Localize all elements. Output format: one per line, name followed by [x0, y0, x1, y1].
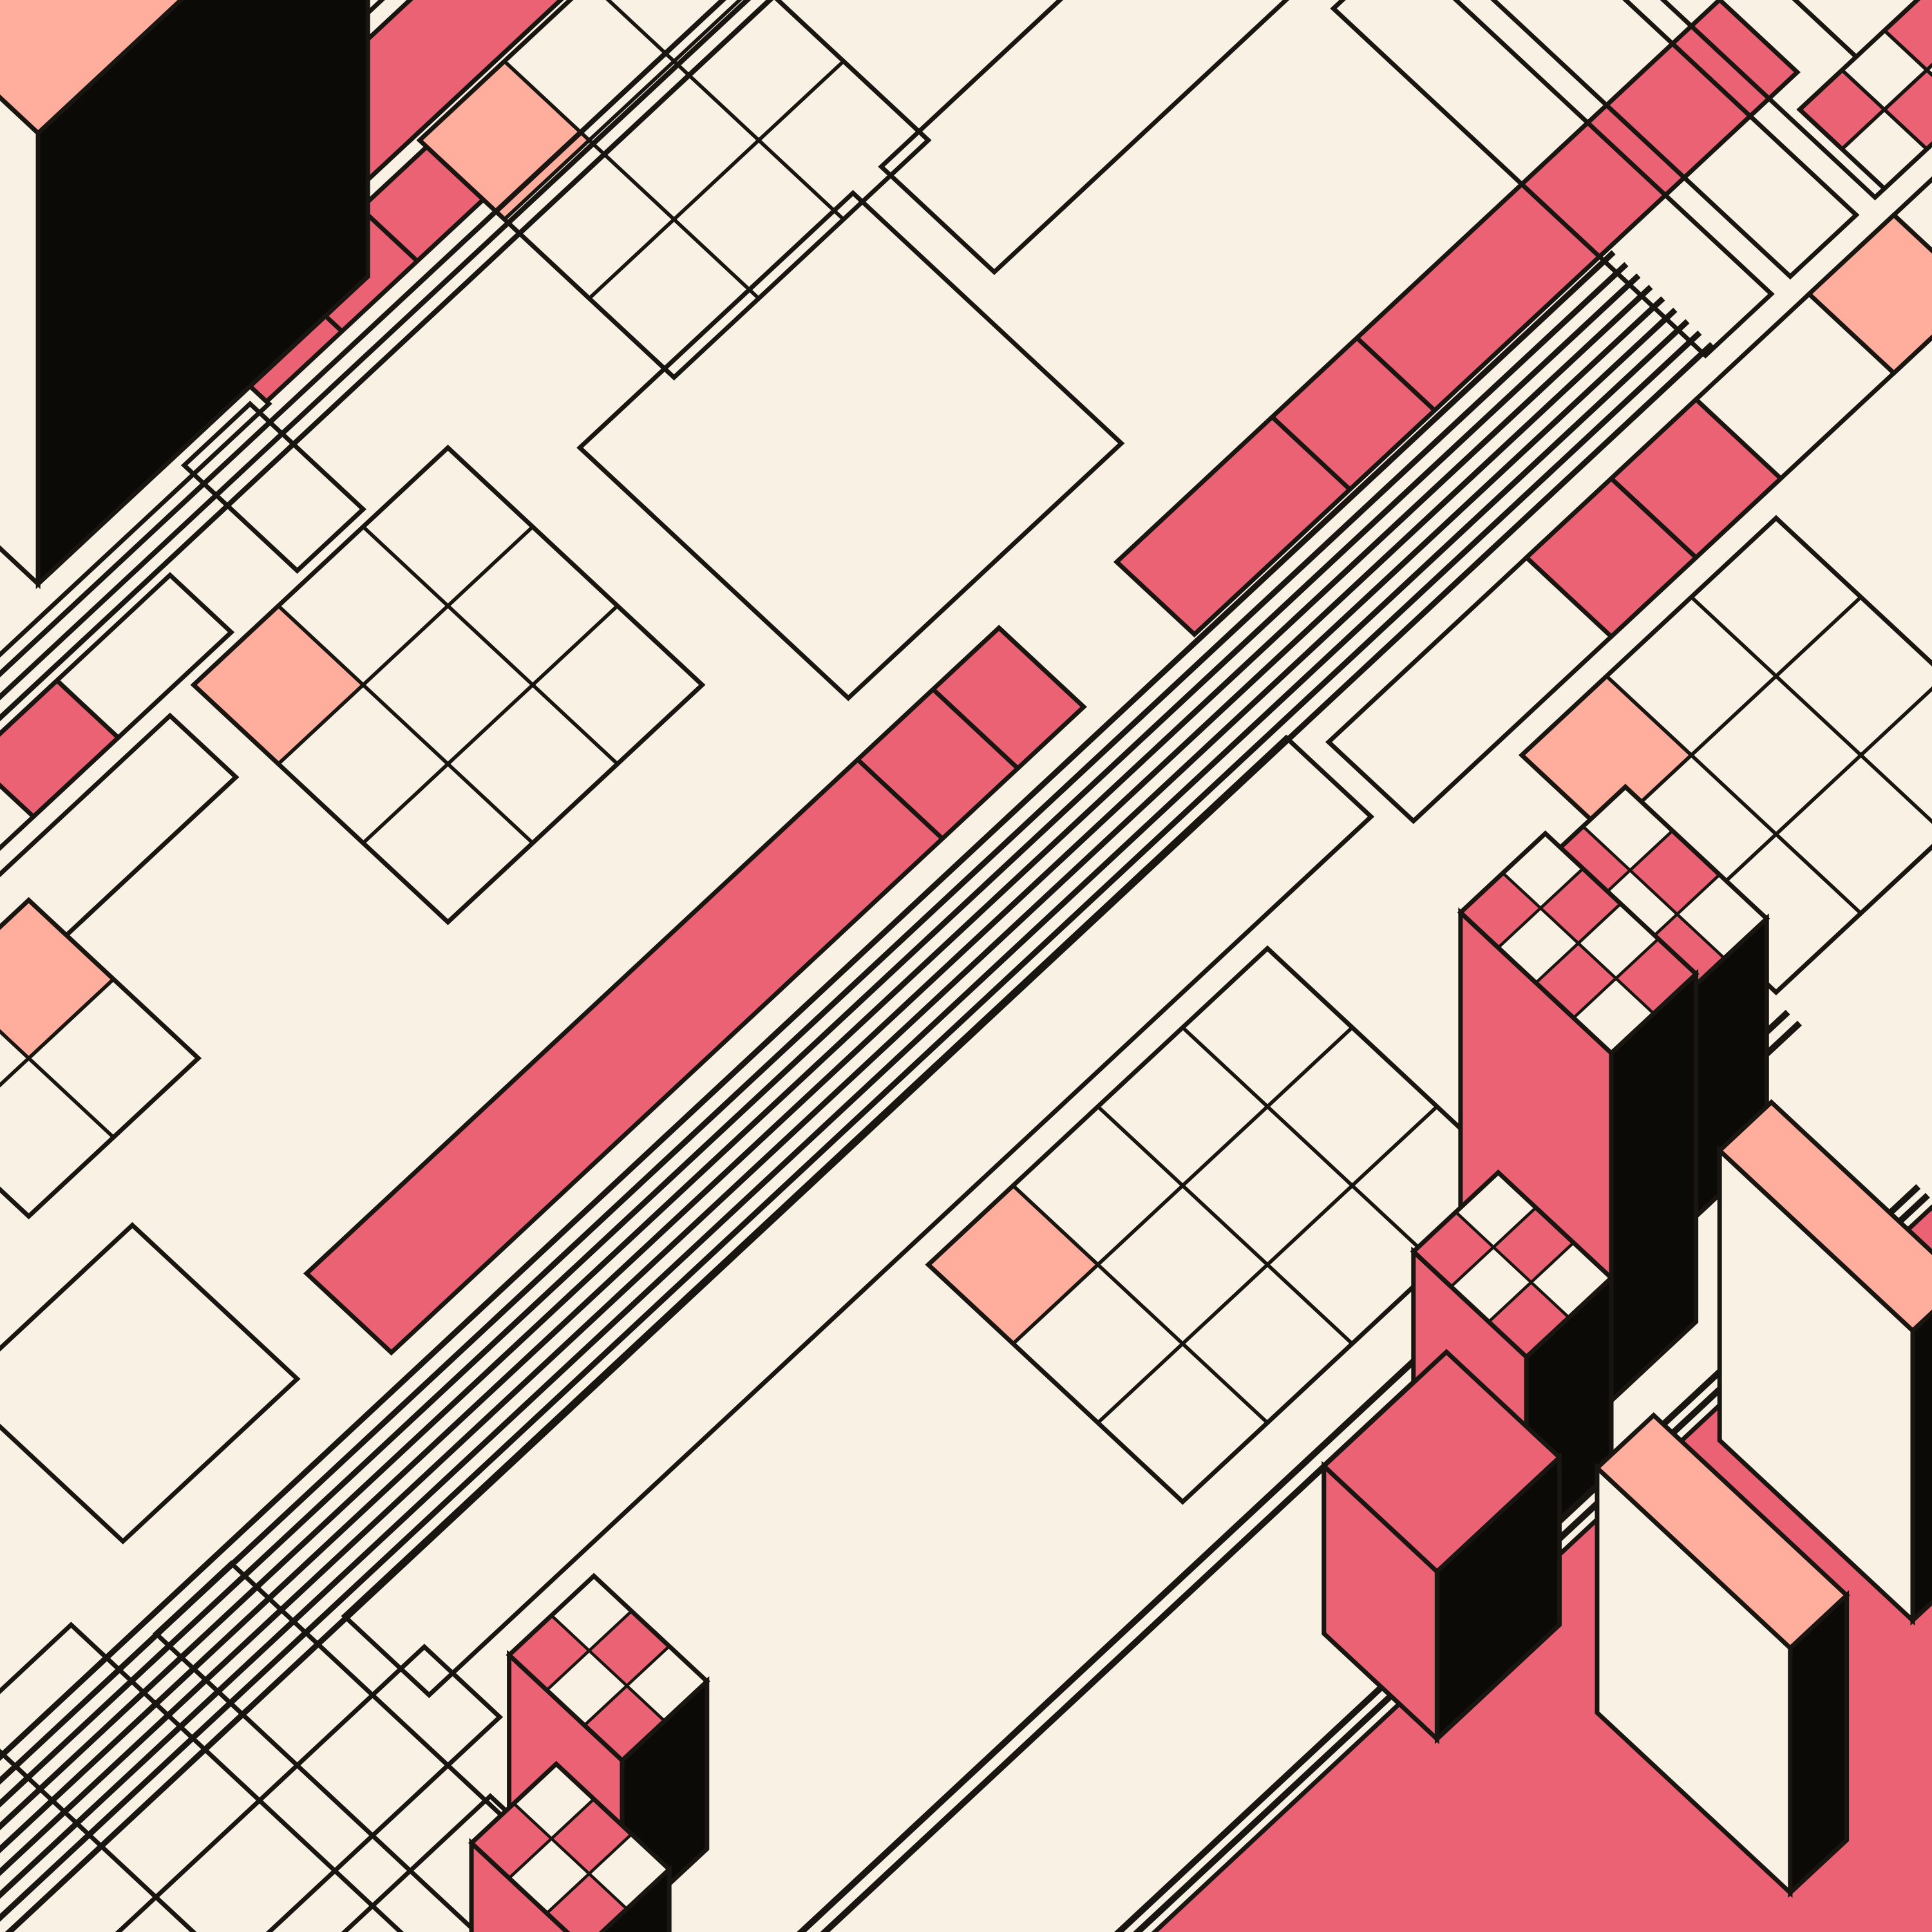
isometric-abstract-artwork: [0, 0, 1932, 1932]
artwork-canvas: [0, 0, 1932, 1932]
tower-cream-br1-face-right: [1913, 1282, 1932, 1620]
